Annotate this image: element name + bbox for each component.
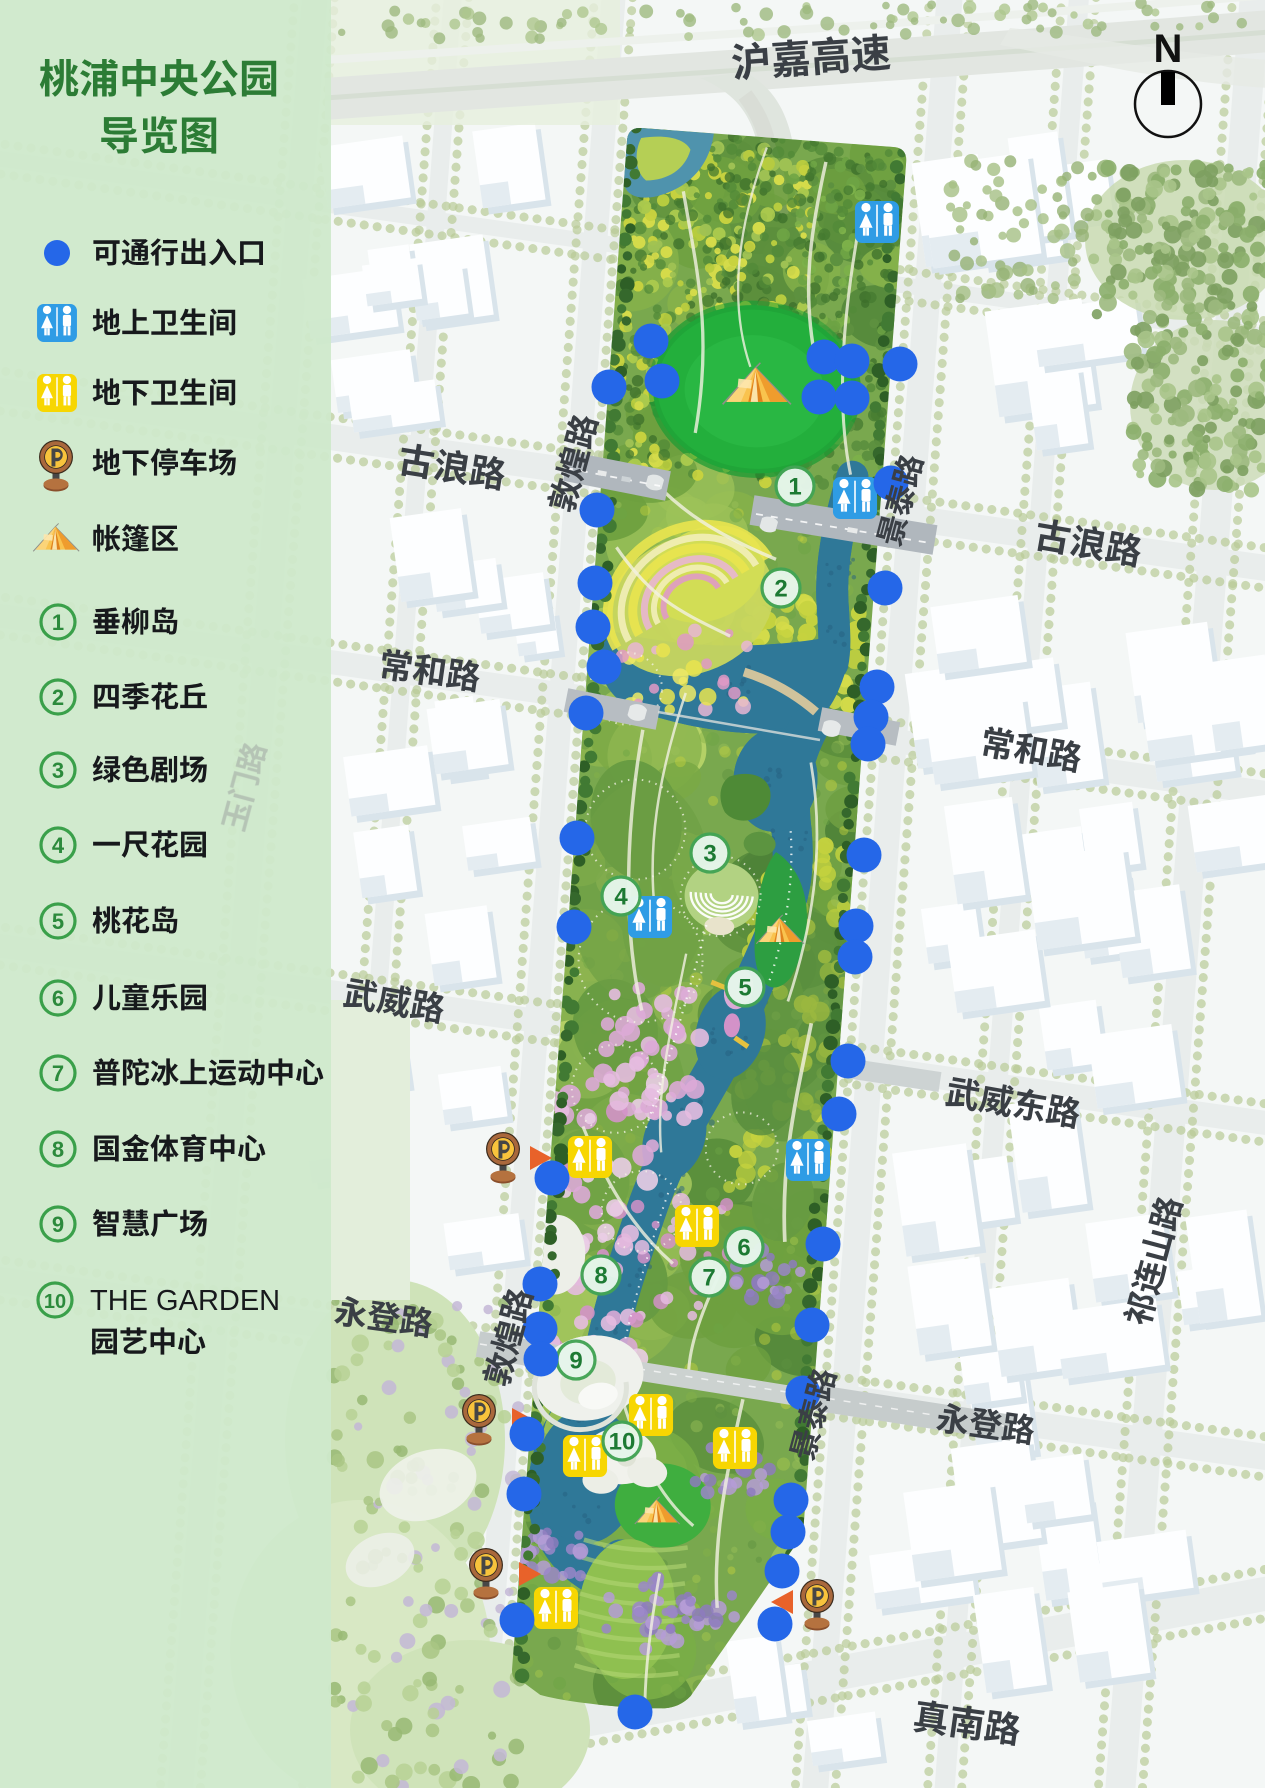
svg-text:7: 7 (702, 1265, 715, 1292)
svg-text:6: 6 (737, 1235, 750, 1262)
svg-text:5: 5 (738, 975, 751, 1002)
svg-text:2: 2 (52, 685, 64, 710)
svg-text:3: 3 (52, 758, 64, 783)
svg-text:3: 3 (703, 841, 716, 868)
svg-text:10: 10 (44, 1291, 66, 1313)
svg-text:5: 5 (52, 909, 64, 934)
svg-text:9: 9 (569, 1348, 582, 1375)
svg-text:4: 4 (52, 833, 65, 858)
svg-text:6: 6 (52, 986, 64, 1011)
svg-text:N: N (1154, 27, 1183, 71)
svg-text:10: 10 (609, 1429, 636, 1456)
svg-text:THE GARDEN: THE GARDEN (90, 1285, 280, 1317)
svg-text:8: 8 (594, 1263, 607, 1290)
svg-text:9: 9 (52, 1212, 64, 1237)
svg-text:8: 8 (52, 1137, 64, 1162)
svg-text:7: 7 (52, 1061, 64, 1086)
svg-text:1: 1 (788, 474, 801, 501)
svg-text:2: 2 (774, 576, 787, 603)
svg-text:1: 1 (52, 610, 64, 635)
svg-text:4: 4 (614, 884, 628, 911)
